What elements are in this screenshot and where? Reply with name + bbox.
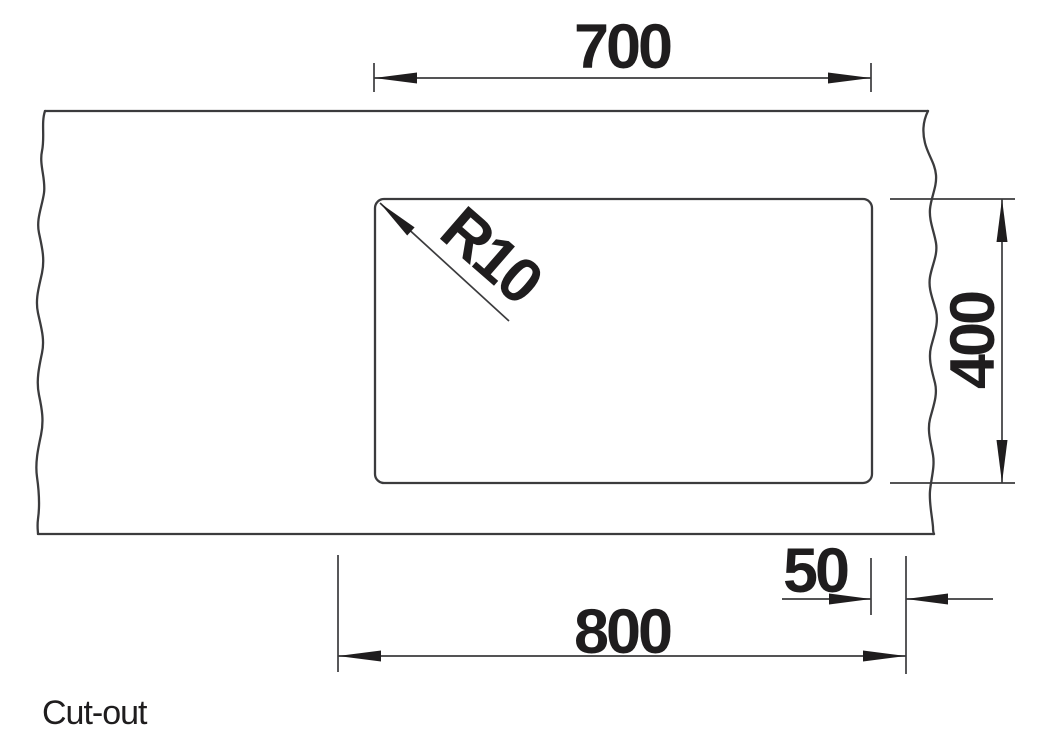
worktop-right-break-line xyxy=(923,111,937,534)
dim-side-height-arrow-up xyxy=(997,199,1008,242)
dim-top-width-arrow-left xyxy=(374,73,417,84)
caption: Cut-out xyxy=(42,694,148,732)
dim-bottom-width-arrow-left xyxy=(338,651,381,662)
dim-top-width-arrow-right xyxy=(828,73,871,84)
dim-bottom-width-label: 800 xyxy=(574,597,671,667)
drawing-canvas: 700 400 50 800 xyxy=(0,0,1048,755)
dim-bottom-width-arrow-right xyxy=(863,651,906,662)
cutout-technical-drawing: 700 400 50 800 xyxy=(0,0,1048,755)
dim-side-height-label: 400 xyxy=(938,292,1008,389)
dim-side-height-arrow-down xyxy=(997,440,1008,483)
dim-side-height: 400 xyxy=(890,199,1015,483)
dim-top-width: 700 xyxy=(374,12,871,92)
dim-top-width-label: 700 xyxy=(574,12,671,82)
dim-edge-offset-label: 50 xyxy=(783,536,848,606)
dim-edge-offset-arrow-right xyxy=(906,594,948,605)
dim-edge-offset: 50 xyxy=(782,536,993,674)
worktop-left-break-line xyxy=(36,111,45,534)
